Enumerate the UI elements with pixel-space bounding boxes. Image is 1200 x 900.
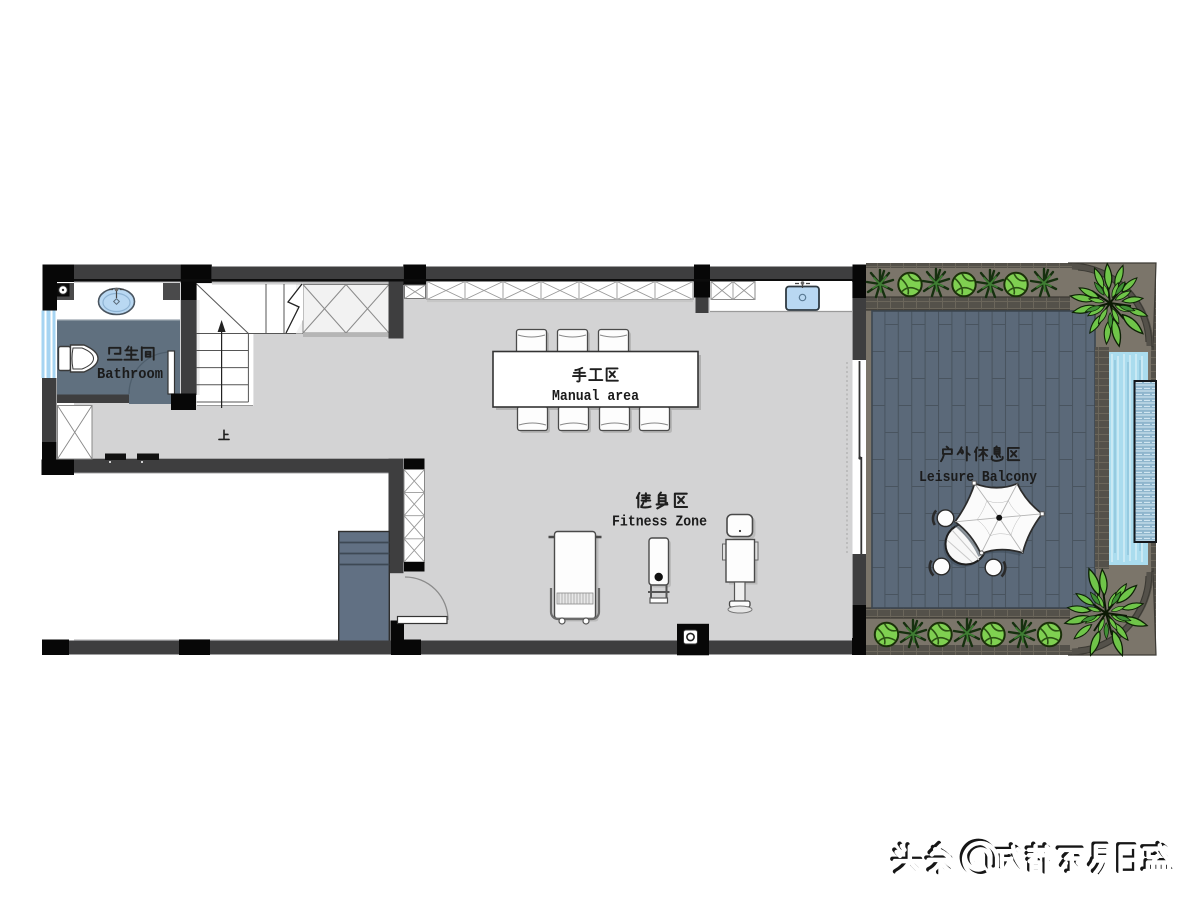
svg-text:Manual area: Manual area <box>552 388 639 405</box>
svg-text:Leisure Balcony: Leisure Balcony <box>919 469 1037 486</box>
svg-text:Bathroom: Bathroom <box>97 366 163 383</box>
svg-text:Fitness Zone: Fitness Zone <box>612 514 707 531</box>
